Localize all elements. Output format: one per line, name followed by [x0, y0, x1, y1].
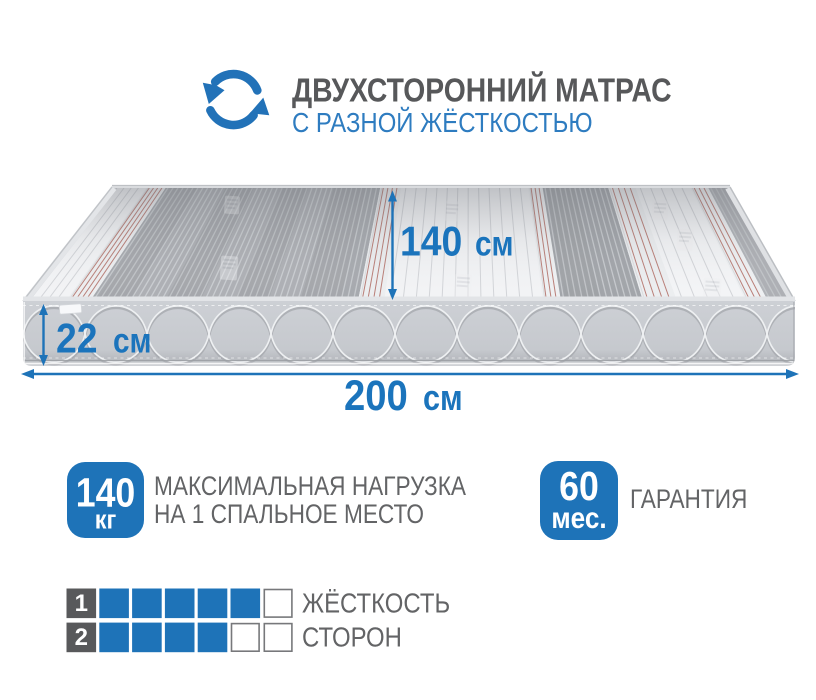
svg-text:22: 22 — [56, 316, 98, 362]
svg-text:140: 140 — [400, 219, 462, 265]
svg-text:С РАЗНОЙ ЖЁСТКОСТЬЮ: С РАЗНОЙ ЖЁСТКОСТЬЮ — [292, 106, 593, 138]
svg-text:1: 1 — [75, 590, 88, 617]
svg-text:СТОРОН: СТОРОН — [302, 623, 402, 653]
svg-text:ЖЁСТКОСТЬ: ЖЁСТКОСТЬ — [302, 589, 450, 619]
svg-text:см: см — [423, 379, 463, 419]
svg-text:мес.: мес. — [551, 501, 606, 534]
svg-text:МАКСИМАЛЬНАЯ НАГРУЗКА: МАКСИМАЛЬНАЯ НАГРУЗКА — [154, 472, 467, 501]
svg-text:кг: кг — [95, 505, 117, 535]
svg-text:200: 200 — [344, 371, 408, 419]
svg-text:2: 2 — [75, 624, 88, 651]
svg-text:ГАРАНТИЯ: ГАРАНТИЯ — [630, 485, 747, 514]
svg-text:ДВУХСТОРОННИЙ МАТРАС: ДВУХСТОРОННИЙ МАТРАС — [292, 70, 672, 109]
svg-text:НА 1 СПАЛЬНОЕ МЕСТО: НА 1 СПАЛЬНОЕ МЕСТО — [154, 500, 424, 529]
svg-text:см: см — [475, 224, 514, 263]
svg-text:см: см — [113, 321, 152, 360]
